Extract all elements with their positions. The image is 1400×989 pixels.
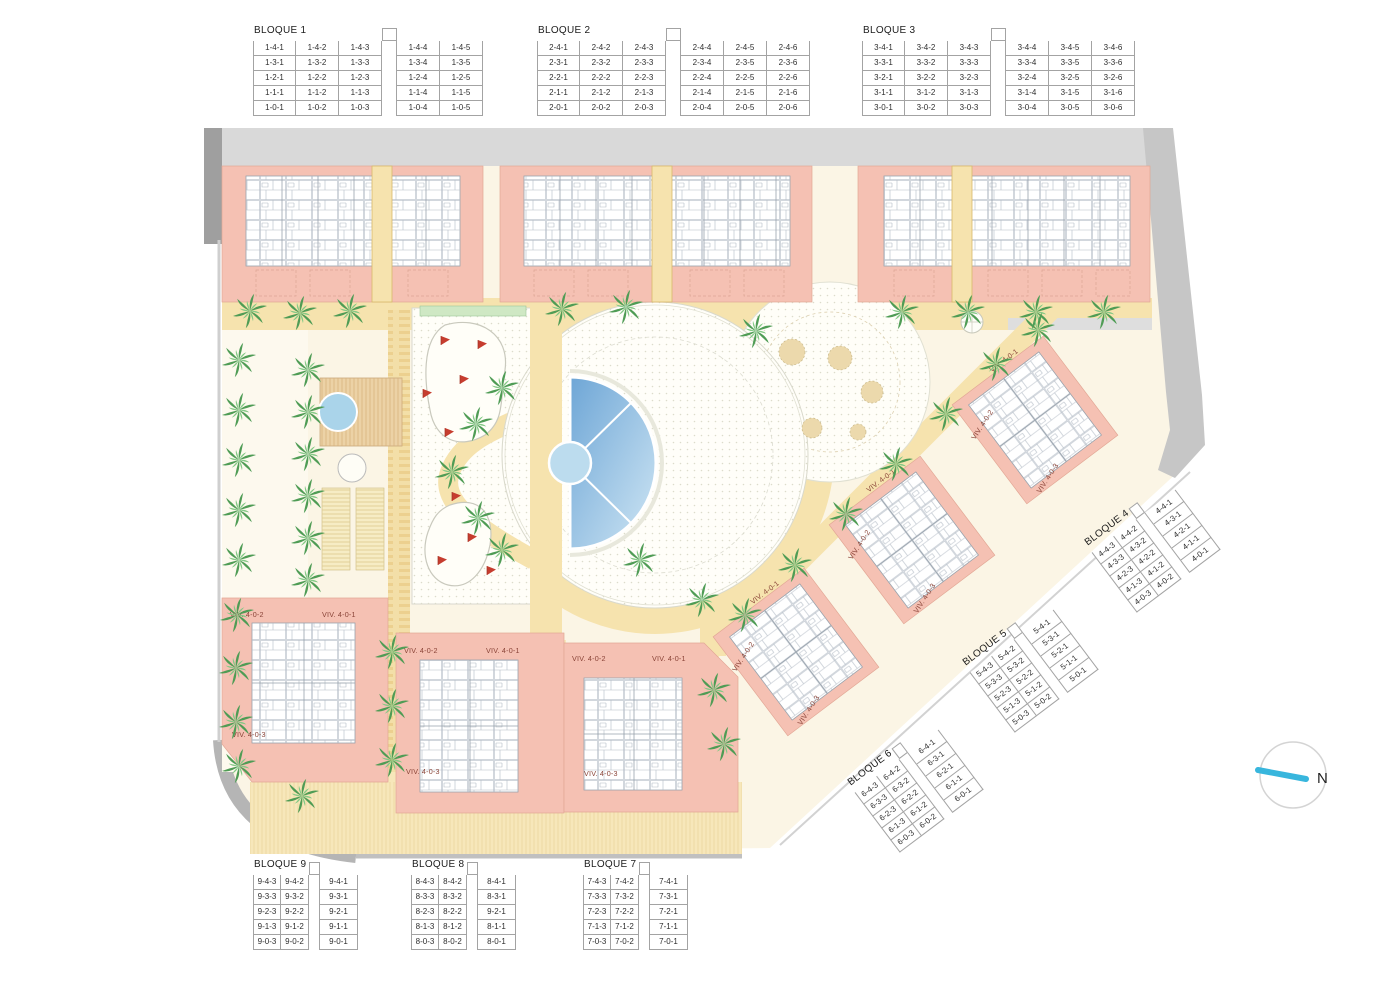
unit-cell: 3-1-4 — [1006, 86, 1049, 101]
table-row: 1-1-11-1-21-1-31-1-41-1-5 — [253, 86, 483, 101]
unit-cell: 8-1-1 — [478, 920, 516, 935]
unit-cell: 1-1-3 — [339, 86, 382, 101]
table-row: 9-3-39-3-29-3-1 — [253, 890, 358, 905]
bloque-7-block: BLOQUE 7 7-4-37-4-27-4-17-3-37-3-27-3-17… — [583, 859, 688, 950]
unit-cell: 3-3-2 — [905, 56, 948, 71]
table-row: 9-0-39-0-29-0-1 — [253, 935, 358, 950]
unit-cell: 2-0-5 — [724, 101, 767, 116]
unit-cell: 1-4-1 — [253, 41, 296, 56]
unit-cell: 2-4-2 — [580, 41, 623, 56]
unit-cell: 3-2-6 — [1092, 71, 1135, 86]
unit-cell: 1-4-2 — [296, 41, 339, 56]
unit-cell: 3-2-1 — [862, 71, 905, 86]
unit-cell: 8-4-3 — [411, 875, 439, 890]
unit-cell: 7-3-1 — [650, 890, 688, 905]
unit-cell: 3-0-3 — [948, 101, 991, 116]
unit-cell: 7-1-2 — [611, 920, 639, 935]
unit-cell: 7-4-1 — [650, 875, 688, 890]
unit-cell: 1-0-4 — [397, 101, 440, 116]
unit-cell: 2-3-4 — [681, 56, 724, 71]
unit-cell: 9-2-1 — [320, 905, 358, 920]
unit-cell: 1-2-4 — [397, 71, 440, 86]
bloque-9-title: BLOQUE 9 — [254, 859, 358, 870]
table-row: 9-2-39-2-29-2-1 — [253, 905, 358, 920]
table-row: 3-0-13-0-23-0-33-0-43-0-53-0-6 — [862, 101, 1135, 116]
building-bloque-7: VIV. 4-0-2 VIV. 4-0-1 VIV. 4-0-3 — [564, 643, 738, 812]
unit-cell: 3-0-1 — [862, 101, 905, 116]
table-row: 3-1-13-1-23-1-33-1-43-1-53-1-6 — [862, 86, 1135, 101]
unit-cell: 3-0-2 — [905, 101, 948, 116]
gap-cell — [467, 905, 478, 920]
unit-cell: 3-4-1 — [862, 41, 905, 56]
site-plan-sheet: VIV. 4-0-2 VIV. 4-0-1 VIV. 4-0-3 VIV. 4-… — [0, 0, 1400, 989]
stair-shaft-box — [382, 28, 397, 41]
building-bloque-9: VIV. 4-0-2 VIV. 4-0-1 VIV. 4-0-3 — [222, 598, 388, 782]
bloque-2-block: BLOQUE 2 2-4-12-4-22-4-32-4-42-4-52-4-62… — [537, 25, 810, 116]
unit-cell: 3-2-4 — [1006, 71, 1049, 86]
table-row: 1-2-11-2-21-2-31-2-41-2-5 — [253, 71, 483, 86]
table-row: 2-2-12-2-22-2-32-2-42-2-52-2-6 — [537, 71, 810, 86]
unit-cell: 8-2-3 — [411, 905, 439, 920]
gap-cell — [309, 920, 320, 935]
unit-cell: 7-0-3 — [583, 935, 611, 950]
table-row: 8-4-38-4-28-4-1 — [411, 875, 516, 890]
table-row: 2-0-12-0-22-0-32-0-42-0-52-0-6 — [537, 101, 810, 116]
unit-cell: 3-3-5 — [1049, 56, 1092, 71]
unit-cell: 9-4-2 — [281, 875, 309, 890]
viv-label: VIV. 4-0-3 — [232, 730, 266, 739]
unit-cell: 2-4-6 — [767, 41, 810, 56]
unit-cell: 9-1-3 — [253, 920, 281, 935]
gap-cell — [991, 71, 1006, 86]
unit-cell: 8-0-2 — [439, 935, 467, 950]
unit-cell: 8-4-2 — [439, 875, 467, 890]
round-pergola — [338, 454, 366, 482]
gap-cell — [382, 56, 397, 71]
unit-cell: 2-3-1 — [537, 56, 580, 71]
unit-cell: 2-2-5 — [724, 71, 767, 86]
viv-label: VIV. 4-0-2 — [572, 654, 606, 663]
unit-cell: 7-4-3 — [583, 875, 611, 890]
table-row: 9-1-39-1-29-1-1 — [253, 920, 358, 935]
unit-cell: 7-0-2 — [611, 935, 639, 950]
unit-cell: 9-3-1 — [320, 890, 358, 905]
gap-cell — [467, 920, 478, 935]
unit-cell: 2-4-1 — [537, 41, 580, 56]
viv-label: VIV. 4-0-1 — [322, 610, 356, 619]
stair-shaft-box — [991, 28, 1006, 41]
unit-cell: 3-3-3 — [948, 56, 991, 71]
north-label: N — [1317, 770, 1328, 787]
table-row: 8-0-38-0-28-0-1 — [411, 935, 516, 950]
table-row: 2-4-12-4-22-4-32-4-42-4-52-4-6 — [537, 41, 810, 56]
unit-cell: 3-3-1 — [862, 56, 905, 71]
stair-shaft-box — [309, 862, 320, 875]
unit-cell: 3-4-2 — [905, 41, 948, 56]
unit-cell: 1-3-1 — [253, 56, 296, 71]
wood-deck — [319, 378, 402, 446]
unit-cell: 1-0-1 — [253, 101, 296, 116]
unit-cell: 9-2-1 — [478, 905, 516, 920]
bloque-7-title: BLOQUE 7 — [584, 859, 688, 870]
table-row: 1-4-11-4-21-4-31-4-41-4-5 — [253, 41, 483, 56]
gap-cell — [382, 101, 397, 116]
unit-cell: 7-4-2 — [611, 875, 639, 890]
unit-cell: 2-1-1 — [537, 86, 580, 101]
unit-cell: 1-4-3 — [339, 41, 382, 56]
bloque-3-table: 3-4-13-4-23-4-33-4-43-4-53-4-63-3-13-3-2… — [862, 41, 1135, 116]
unit-cell: 8-4-1 — [478, 875, 516, 890]
gap-cell — [991, 101, 1006, 116]
unit-cell: 1-1-5 — [440, 86, 483, 101]
unit-cell: 9-2-2 — [281, 905, 309, 920]
gap-cell — [991, 41, 1006, 56]
unit-cell: 2-0-3 — [623, 101, 666, 116]
unit-cell: 2-3-2 — [580, 56, 623, 71]
gap-cell — [309, 890, 320, 905]
unit-cell: 3-4-6 — [1092, 41, 1135, 56]
unit-cell: 2-0-4 — [681, 101, 724, 116]
unit-cell: 3-0-4 — [1006, 101, 1049, 116]
viv-label: VIV. 4-0-1 — [652, 654, 686, 663]
unit-cell: 3-3-4 — [1006, 56, 1049, 71]
north-arrow: N — [1258, 742, 1328, 808]
gap-cell — [382, 41, 397, 56]
unit-cell: 8-0-3 — [411, 935, 439, 950]
unit-cell: 8-2-2 — [439, 905, 467, 920]
unit-cell: 3-0-6 — [1092, 101, 1135, 116]
unit-cell: 2-3-6 — [767, 56, 810, 71]
masterplan-drawing: VIV. 4-0-2 VIV. 4-0-1 VIV. 4-0-3 VIV. 4-… — [0, 0, 1400, 989]
unit-cell: 1-3-2 — [296, 56, 339, 71]
gap-cell — [382, 86, 397, 101]
unit-cell: 9-4-1 — [320, 875, 358, 890]
unit-cell: 9-0-1 — [320, 935, 358, 950]
unit-cell: 9-3-2 — [281, 890, 309, 905]
table-row: 7-0-37-0-27-0-1 — [583, 935, 688, 950]
unit-cell: 7-1-3 — [583, 920, 611, 935]
bloque-1-block: BLOQUE 1 1-4-11-4-21-4-31-4-41-4-51-3-11… — [253, 25, 483, 116]
unit-cell: 1-1-1 — [253, 86, 296, 101]
table-row: 1-3-11-3-21-3-31-3-41-3-5 — [253, 56, 483, 71]
unit-cell: 3-4-4 — [1006, 41, 1049, 56]
unit-cell: 2-0-6 — [767, 101, 810, 116]
unit-cell: 1-3-4 — [397, 56, 440, 71]
unit-cell: 3-2-5 — [1049, 71, 1092, 86]
unit-cell: 2-3-5 — [724, 56, 767, 71]
unit-cell: 9-0-3 — [253, 935, 281, 950]
unit-cell: 2-2-1 — [537, 71, 580, 86]
bloque-2-table: 2-4-12-4-22-4-32-4-42-4-52-4-62-3-12-3-2… — [537, 41, 810, 116]
bloque-3-block: BLOQUE 3 3-4-13-4-23-4-33-4-43-4-53-4-63… — [862, 25, 1135, 116]
gap-cell — [639, 905, 650, 920]
unit-cell: 2-2-2 — [580, 71, 623, 86]
bloque-9-block: BLOQUE 9 9-4-39-4-29-4-19-3-39-3-29-3-19… — [253, 859, 358, 950]
table-row: 2-3-12-3-22-3-32-3-42-3-52-3-6 — [537, 56, 810, 71]
unit-cell: 1-3-3 — [339, 56, 382, 71]
stair-shaft-box — [467, 862, 478, 875]
unit-cell: 2-1-5 — [724, 86, 767, 101]
unit-cell: 1-2-1 — [253, 71, 296, 86]
unit-cell: 3-1-1 — [862, 86, 905, 101]
unit-cell: 1-2-5 — [440, 71, 483, 86]
unit-cell: 3-2-2 — [905, 71, 948, 86]
unit-cell: 2-4-3 — [623, 41, 666, 56]
gap-cell — [309, 875, 320, 890]
unit-cell: 3-1-6 — [1092, 86, 1135, 101]
gap-cell — [991, 56, 1006, 71]
table-row: 8-3-38-3-28-3-1 — [411, 890, 516, 905]
gap-cell — [639, 935, 650, 950]
gap-cell — [467, 890, 478, 905]
top-buildings — [222, 166, 1150, 302]
unit-cell: 1-2-3 — [339, 71, 382, 86]
unit-cell: 7-2-2 — [611, 905, 639, 920]
unit-cell: 9-1-2 — [281, 920, 309, 935]
gap-cell — [382, 71, 397, 86]
bloque-7-table: 7-4-37-4-27-4-17-3-37-3-27-3-17-2-37-2-2… — [583, 875, 688, 950]
table-row: 7-4-37-4-27-4-1 — [583, 875, 688, 890]
table-row: 7-2-37-2-27-2-1 — [583, 905, 688, 920]
unit-cell: 3-3-6 — [1092, 56, 1135, 71]
gap-cell — [467, 935, 478, 950]
unit-cell: 3-1-5 — [1049, 86, 1092, 101]
unit-cell: 3-4-5 — [1049, 41, 1092, 56]
unit-cell: 8-1-2 — [439, 920, 467, 935]
unit-cell: 2-2-3 — [623, 71, 666, 86]
gap-cell — [467, 875, 478, 890]
unit-cell: 8-3-2 — [439, 890, 467, 905]
unit-cell: 1-1-4 — [397, 86, 440, 101]
unit-cell: 3-1-3 — [948, 86, 991, 101]
gap-cell — [666, 71, 681, 86]
small-pool — [319, 393, 357, 431]
unit-cell: 2-2-4 — [681, 71, 724, 86]
unit-cell: 1-4-4 — [397, 41, 440, 56]
unit-cell: 3-0-5 — [1049, 101, 1092, 116]
table-row: 9-4-39-4-29-4-1 — [253, 875, 358, 890]
unit-cell: 2-4-5 — [724, 41, 767, 56]
unit-cell: 7-3-3 — [583, 890, 611, 905]
unit-cell: 3-4-3 — [948, 41, 991, 56]
unit-cell: 8-3-3 — [411, 890, 439, 905]
gap-cell — [666, 86, 681, 101]
table-row: 3-4-13-4-23-4-33-4-43-4-53-4-6 — [862, 41, 1135, 56]
unit-cell: 1-3-5 — [440, 56, 483, 71]
viv-label: VIV. 4-0-3 — [584, 769, 618, 778]
unit-cell: 2-3-3 — [623, 56, 666, 71]
table-row: 3-3-13-3-23-3-33-3-43-3-53-3-6 — [862, 56, 1135, 71]
unit-cell: 2-0-1 — [537, 101, 580, 116]
unit-cell: 2-1-6 — [767, 86, 810, 101]
jacuzzi — [549, 442, 591, 484]
unit-cell: 7-3-2 — [611, 890, 639, 905]
unit-cell: 8-1-3 — [411, 920, 439, 935]
unit-cell: 1-0-5 — [440, 101, 483, 116]
viv-label: VIV. 4-0-2 — [404, 646, 438, 655]
gap-cell — [666, 41, 681, 56]
bloque-8-block: BLOQUE 8 8-4-38-4-28-4-18-3-38-3-28-3-18… — [411, 859, 516, 950]
stair-shaft-box — [666, 28, 681, 41]
unit-cell: 1-0-3 — [339, 101, 382, 116]
unit-cell: 9-1-1 — [320, 920, 358, 935]
unit-cell: 2-1-4 — [681, 86, 724, 101]
unit-cell: 2-1-3 — [623, 86, 666, 101]
unit-cell: 9-4-3 — [253, 875, 281, 890]
table-row: 8-2-38-2-29-2-1 — [411, 905, 516, 920]
hedge — [420, 306, 526, 316]
unit-cell: 1-2-2 — [296, 71, 339, 86]
building-bloque-8: VIV. 4-0-2 VIV. 4-0-1 VIV. 4-0-3 — [396, 633, 564, 813]
table-row: 7-3-37-3-27-3-1 — [583, 890, 688, 905]
unit-cell: 2-4-4 — [681, 41, 724, 56]
unit-cell: 7-1-1 — [650, 920, 688, 935]
table-row: 3-2-13-2-23-2-33-2-43-2-53-2-6 — [862, 71, 1135, 86]
gap-cell — [309, 935, 320, 950]
table-row: 1-0-11-0-21-0-31-0-41-0-5 — [253, 101, 483, 116]
unit-cell: 2-0-2 — [580, 101, 623, 116]
stair-shaft-box — [639, 862, 650, 875]
bloque-9-table: 9-4-39-4-29-4-19-3-39-3-29-3-19-2-39-2-2… — [253, 875, 358, 950]
gap-cell — [666, 56, 681, 71]
gap-cell — [639, 875, 650, 890]
table-row: 2-1-12-1-22-1-32-1-42-1-52-1-6 — [537, 86, 810, 101]
bloque-8-title: BLOQUE 8 — [412, 859, 516, 870]
bloque-1-title: BLOQUE 1 — [254, 25, 483, 36]
unit-cell: 1-4-5 — [440, 41, 483, 56]
unit-cell: 7-0-1 — [650, 935, 688, 950]
gap-cell — [666, 101, 681, 116]
gap-cell — [639, 890, 650, 905]
bloque-1-table: 1-4-11-4-21-4-31-4-41-4-51-3-11-3-21-3-3… — [253, 41, 483, 116]
unit-cell: 9-0-2 — [281, 935, 309, 950]
unit-cell: 7-2-3 — [583, 905, 611, 920]
unit-cell: 3-2-3 — [948, 71, 991, 86]
unit-cell: 8-0-1 — [478, 935, 516, 950]
unit-cell: 9-3-3 — [253, 890, 281, 905]
unit-cell: 1-0-2 — [296, 101, 339, 116]
table-row: 7-1-37-1-27-1-1 — [583, 920, 688, 935]
unit-cell: 2-1-2 — [580, 86, 623, 101]
unit-cell: 8-3-1 — [478, 890, 516, 905]
viv-label: VIV. 4-0-1 — [486, 646, 520, 655]
unit-cell: 7-2-1 — [650, 905, 688, 920]
unit-cell: 3-1-2 — [905, 86, 948, 101]
gap-cell — [309, 905, 320, 920]
gap-cell — [991, 86, 1006, 101]
unit-cell: 1-1-2 — [296, 86, 339, 101]
unit-cell: 9-2-3 — [253, 905, 281, 920]
table-row: 8-1-38-1-28-1-1 — [411, 920, 516, 935]
viv-label: VIV. 4-0-3 — [406, 767, 440, 776]
gap-cell — [639, 920, 650, 935]
unit-cell: 2-2-6 — [767, 71, 810, 86]
bloque-8-table: 8-4-38-4-28-4-18-3-38-3-28-3-18-2-38-2-2… — [411, 875, 516, 950]
